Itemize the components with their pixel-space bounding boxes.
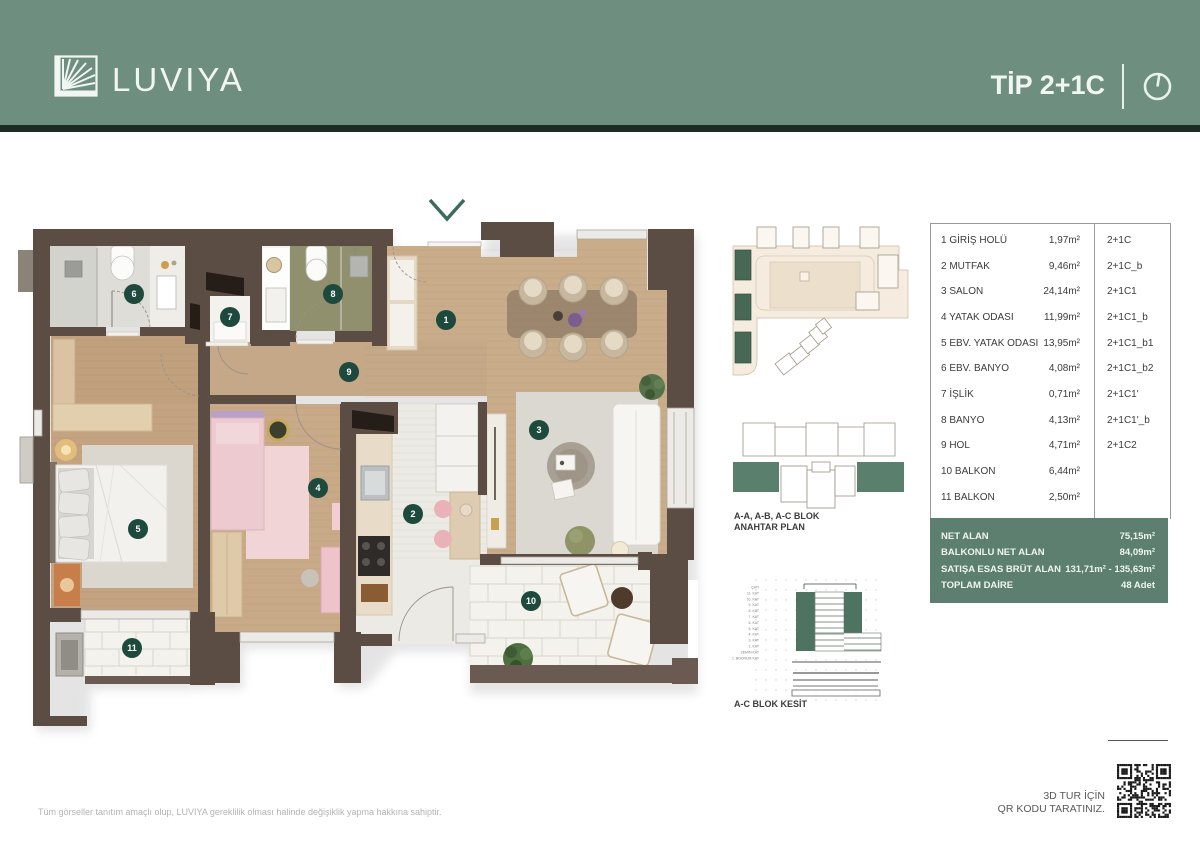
svg-text:ZEMİN KAT: ZEMİN KAT bbox=[741, 649, 760, 654]
svg-text:11: 11 bbox=[127, 643, 137, 653]
svg-text:2: 2 bbox=[410, 509, 415, 519]
svg-text:11. KAT: 11. KAT bbox=[747, 591, 760, 595]
svg-text:8: 8 bbox=[330, 289, 335, 299]
svg-text:5: 5 bbox=[135, 524, 140, 534]
svg-text:4. KAT: 4. KAT bbox=[749, 633, 760, 637]
svg-text:9: 9 bbox=[346, 367, 351, 377]
svg-text:1: 1 bbox=[443, 315, 448, 325]
svg-text:9. KAT: 9. KAT bbox=[749, 603, 760, 607]
svg-text:6: 6 bbox=[131, 289, 136, 299]
svg-text:4: 4 bbox=[315, 483, 320, 493]
svg-text:6. KAT: 6. KAT bbox=[749, 621, 760, 625]
svg-text:3: 3 bbox=[536, 425, 541, 435]
svg-text:10. KAT: 10. KAT bbox=[747, 597, 760, 601]
svg-text:8. KAT: 8. KAT bbox=[749, 609, 760, 613]
svg-text:10: 10 bbox=[526, 596, 536, 606]
svg-text:1. BODRUM KAT: 1. BODRUM KAT bbox=[732, 656, 760, 660]
svg-text:ÇATI: ÇATI bbox=[751, 586, 759, 590]
svg-text:3. KAT: 3. KAT bbox=[749, 639, 760, 643]
svg-text:1. KAT: 1. KAT bbox=[749, 645, 760, 649]
svg-text:5. KAT: 5. KAT bbox=[749, 627, 760, 631]
svg-text:7: 7 bbox=[227, 312, 232, 322]
svg-text:7. KAT: 7. KAT bbox=[749, 615, 760, 619]
